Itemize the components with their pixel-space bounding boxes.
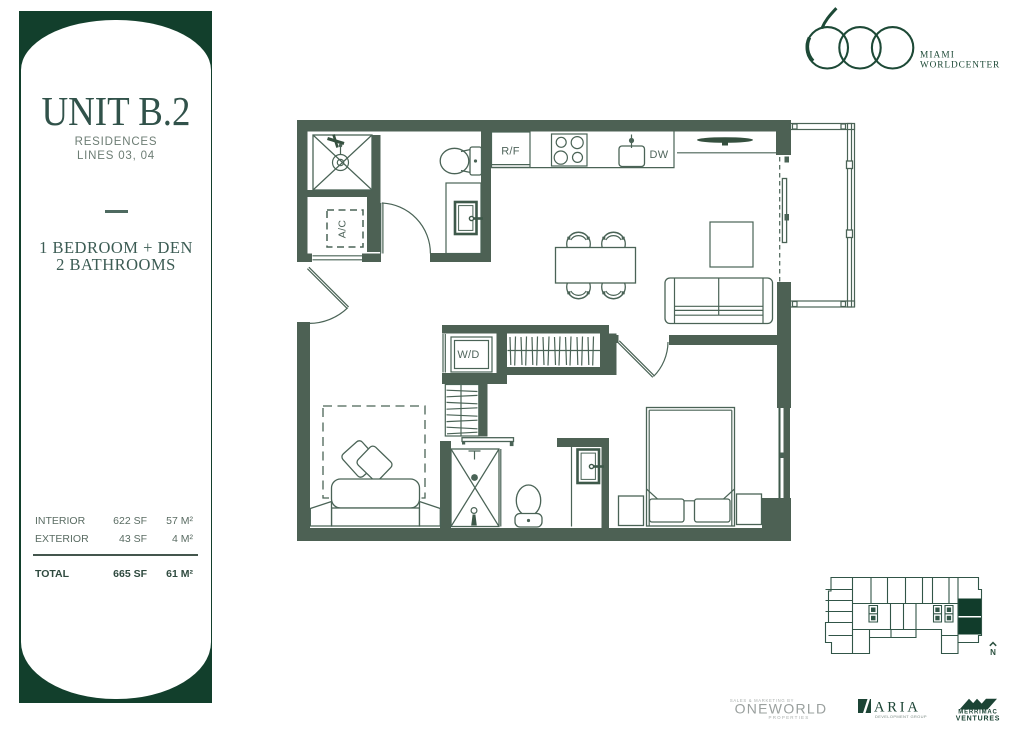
svg-text:VENTURES: VENTURES — [956, 716, 1001, 723]
svg-text:DEVELOPMENT GROUP: DEVELOPMENT GROUP — [875, 714, 927, 719]
svg-text:PROPERTIES: PROPERTIES — [769, 715, 810, 720]
